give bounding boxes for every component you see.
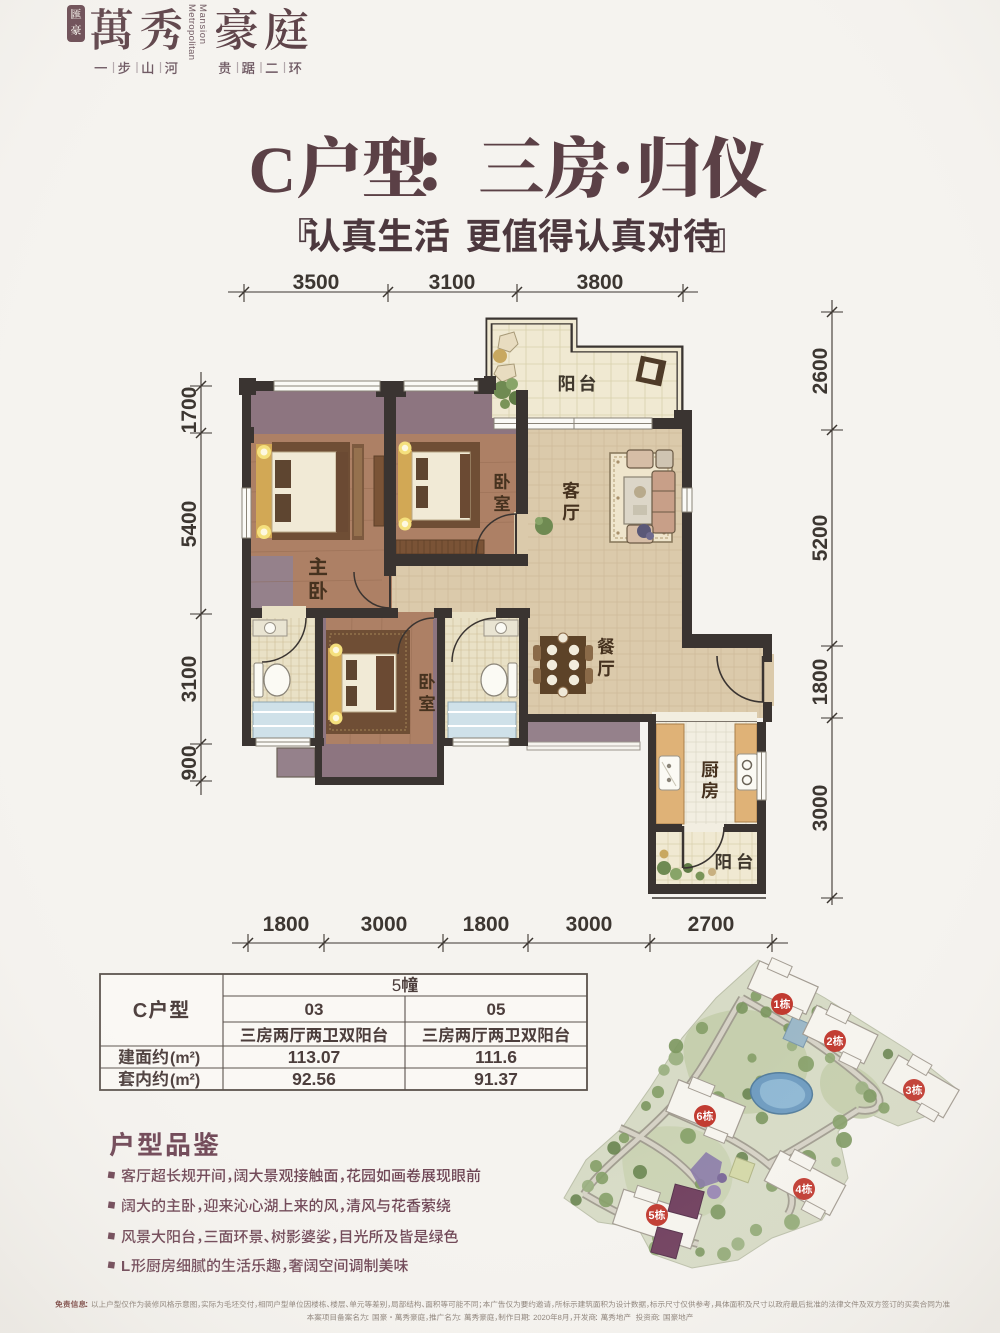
svg-text:3800: 3800: [577, 271, 624, 294]
svg-text:03: 03: [305, 1000, 324, 1019]
svg-text:91.37: 91.37: [474, 1069, 518, 1089]
svg-text:5400: 5400: [178, 501, 201, 548]
svg-text:2600: 2600: [809, 348, 832, 395]
svg-text:Metropolitan: Metropolitan: [186, 4, 197, 60]
svg-text:3000: 3000: [809, 785, 832, 832]
svg-text:1800: 1800: [463, 913, 510, 936]
svg-text:Mansion: Mansion: [197, 4, 208, 44]
svg-text:(m²): (m²): [170, 1050, 200, 1067]
svg-text:92.56: 92.56: [292, 1069, 336, 1089]
svg-text:1700: 1700: [178, 387, 201, 434]
svg-text:5200: 5200: [809, 515, 832, 562]
svg-text:3500: 3500: [293, 271, 340, 294]
svg-text:3100: 3100: [178, 656, 201, 703]
svg-text:900: 900: [178, 745, 201, 780]
svg-text:113.07: 113.07: [288, 1047, 341, 1067]
svg-text:L: L: [121, 1258, 130, 1275]
svg-text:1800: 1800: [809, 659, 832, 706]
svg-text:111.6: 111.6: [475, 1047, 517, 1067]
svg-text:2700: 2700: [688, 913, 735, 936]
svg-text:(m²): (m²): [170, 1072, 200, 1089]
svg-text:05: 05: [487, 1000, 506, 1019]
svg-text:3000: 3000: [566, 913, 613, 936]
svg-text:3100: 3100: [429, 271, 476, 294]
svg-text:3000: 3000: [361, 913, 408, 936]
svg-text:1800: 1800: [263, 913, 310, 936]
